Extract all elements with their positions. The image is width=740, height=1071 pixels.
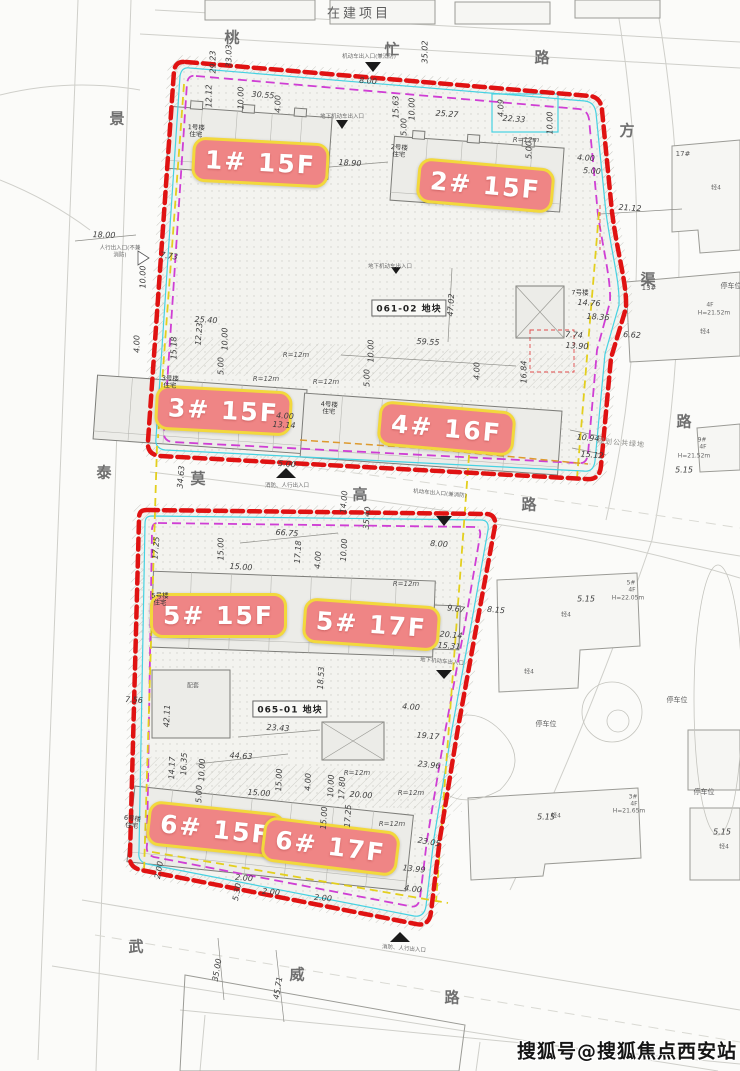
dimension-label: 12.12 — [205, 85, 214, 108]
street-char: 路 — [521, 494, 536, 515]
entrance-label: 地下机动车出入口 — [320, 112, 364, 120]
context-building-label: 3# — [629, 794, 638, 801]
radius-label: R=12m — [253, 375, 279, 383]
dimension-label: 35.02 — [421, 41, 430, 64]
dimension-label: 18.00 — [92, 230, 115, 240]
entrance-label: 消防、人行出入口 — [265, 481, 309, 489]
dimension-label: 16.84 — [520, 361, 529, 384]
dimension-label: 18.53 — [316, 666, 326, 689]
unit-name: 7号楼 — [571, 289, 588, 296]
radius-label: R=12m — [313, 378, 339, 386]
dimension-label: 19.17 — [416, 731, 440, 742]
dimension-label: 25.27 — [435, 109, 458, 120]
dimension-label: 5.00 — [194, 785, 204, 803]
pavement-label: 轻4 — [524, 667, 534, 676]
street-char: 高 — [352, 484, 367, 505]
dimension-label: 18.36 — [586, 312, 609, 322]
parking-label: 停车位 — [694, 787, 715, 797]
pavement-label: 轻4 — [711, 183, 721, 192]
unit-type: 住宅 — [322, 409, 335, 417]
dimension-label: 4.00 — [274, 95, 283, 113]
context-building-label: 13# — [642, 284, 657, 292]
dimension-label: 22.33 — [502, 114, 525, 125]
dimension-label: 8.15 — [487, 605, 506, 616]
dimension-label: 10.00 — [339, 538, 349, 561]
unit-type: 住宅 — [189, 132, 202, 140]
dimension-label: 42.11 — [162, 704, 172, 727]
unit-label: 3号楼住宅 — [161, 375, 179, 391]
dimension-label: 20.00 — [349, 790, 372, 801]
dimension-label: 6.62 — [623, 330, 641, 340]
site-plan-drawing — [0, 0, 740, 1071]
entrance-label: 机动车出入口(兼消防) — [342, 52, 396, 60]
dimension-label: 4.00 — [313, 551, 323, 569]
entrance-arrow-icon — [390, 932, 410, 942]
dimension-label: 7.56 — [125, 695, 143, 705]
amenity-label: 配套 — [187, 681, 199, 690]
dimension-label: 15.00 — [274, 768, 284, 791]
dimension-label: 5.15 — [713, 828, 731, 837]
dimension-label: 5.00 — [278, 459, 297, 470]
radius-label: R=12m — [344, 769, 370, 777]
entrance-label: 地下机动车出入口 — [368, 262, 412, 270]
radius-label: R=12m — [379, 820, 405, 828]
unit-label: 7号楼 — [571, 289, 588, 296]
context-building-label: H=21.65m — [613, 808, 646, 815]
radius-label: R=12m — [398, 789, 424, 797]
dimension-label: 10.00 — [546, 112, 555, 135]
dimension-label: 14.76 — [577, 298, 600, 308]
street-char: 威 — [289, 964, 304, 985]
dimension-label: 5.00 — [400, 118, 409, 136]
dimension-label: 15.00 — [319, 806, 329, 829]
radius-label: R=12m — [513, 136, 539, 144]
unit-label: 2号楼住宅 — [390, 144, 408, 160]
dimension-label: 2.00 — [262, 887, 281, 898]
parking-label: 停车位 — [536, 719, 557, 729]
dimension-label: 15.12 — [580, 450, 604, 461]
unit-label: 5号楼住宅 — [151, 593, 168, 608]
street-char: 景 — [109, 108, 124, 129]
construction-project-label: 在建项目 — [327, 3, 391, 22]
dimension-label: 21.12 — [618, 203, 641, 213]
unit-label: 6号楼住宅 — [123, 815, 142, 832]
dimension-label: 17.80 — [337, 776, 347, 799]
dimension-label: 4.00 — [303, 773, 313, 791]
dimension-label: 10.00 — [326, 774, 336, 797]
dimension-label: 15.63 — [392, 96, 401, 119]
parcel-label: 061-02 地块 — [371, 300, 446, 317]
dimension-label: 4.00 — [473, 362, 482, 380]
parking-label: 停车位 — [721, 281, 740, 291]
dimension-label: 4.00 — [133, 335, 142, 353]
dimension-label: 5.15 — [675, 466, 693, 475]
dimension-label: 5.00 — [217, 357, 226, 375]
context-building-label: 4F — [706, 302, 713, 309]
dimension-label: 5.15 — [577, 595, 595, 604]
context-building-label: H=21.52m — [698, 310, 731, 317]
dimension-label: 10.00 — [408, 98, 417, 121]
dimension-label: 14.17 — [167, 756, 177, 779]
context-building-label: 4F — [699, 444, 706, 451]
dimension-label: 17.25 — [343, 804, 353, 827]
dimension-label: 47.02 — [446, 293, 456, 316]
dimension-label: 4.00 — [404, 884, 423, 895]
dimension-label: 30.55 — [251, 90, 274, 101]
radius-label: R=12m — [283, 351, 309, 359]
dimension-label: 10.00 — [197, 758, 207, 781]
street-char: 泰 — [96, 462, 111, 483]
dimension-label: 15.00 — [217, 538, 226, 561]
unit-type: 住宅 — [163, 383, 176, 391]
dimension-label: 10.00 — [237, 87, 246, 110]
dimension-label: 44.63 — [229, 751, 252, 761]
dimension-label: 5.00 — [583, 166, 601, 176]
pavement-label: 轻4 — [719, 842, 729, 851]
dimension-label: 2.00 — [235, 873, 254, 884]
dimension-label: 15.00 — [229, 562, 252, 573]
dimension-label: 18.90 — [338, 158, 361, 168]
dimension-label: 10.00 — [367, 340, 376, 363]
pavement-label: 轻4 — [700, 327, 710, 336]
parking-label: 停车位 — [667, 695, 688, 705]
unit-type: 住宅 — [125, 822, 139, 831]
dimension-label: 15.31 — [437, 641, 461, 652]
tower-tag: 5# 17F — [302, 597, 442, 651]
dimension-label: 20.14 — [439, 630, 463, 641]
context-building-label: H=22.05m — [612, 595, 645, 602]
dimension-label: 4.00 — [402, 702, 420, 712]
pavement-label: 轻4 — [561, 610, 571, 619]
entrance-arrow-icon — [365, 62, 381, 72]
dimension-label: 4.00 — [577, 153, 595, 163]
unit-type: 住宅 — [153, 600, 166, 607]
dimension-label: 15.18 — [170, 337, 179, 360]
context-building-label: 4F — [628, 587, 635, 594]
dimension-label: 15.00 — [247, 788, 270, 799]
dimension-label: 5.00 — [363, 369, 372, 387]
unit-type: 住宅 — [392, 152, 405, 160]
site-plan-canvas: 在建项目 桃 忙 路 景 方 渠 泰 莫 高 路 路 武 威 路 061-02 … — [0, 0, 740, 1071]
context-building-label: 4F — [630, 801, 637, 808]
dimension-label: 8.00 — [359, 76, 377, 86]
small-building-footprint — [322, 722, 384, 760]
dimension-label: 17.18 — [293, 540, 303, 563]
dimension-label: 10.00 — [139, 266, 148, 289]
street-char: 莫 — [190, 468, 205, 489]
entrance-label: 人行出入口(不兼消防) — [97, 245, 143, 258]
context-building-label: 5# — [627, 580, 636, 587]
tower-tag: 1# 15F — [191, 136, 330, 188]
context-building-label: 9# — [698, 437, 707, 444]
unit-label: 4号楼住宅 — [320, 401, 338, 417]
dimension-label: 7.74 — [565, 330, 583, 340]
tower-tag: 5# 15F — [150, 593, 287, 638]
dimension-label: 16.35 — [179, 752, 189, 775]
dimension-label: 10.94 — [576, 433, 600, 444]
dimension-label: 2.00 — [314, 893, 333, 904]
street-char: 方 — [619, 120, 634, 141]
dimension-label: 13.90 — [565, 341, 588, 351]
street-char: 路 — [534, 47, 549, 68]
parcel-label: 065-01 地块 — [252, 701, 327, 718]
dimension-label: 8.00 — [430, 539, 448, 549]
watermark: 搜狐号@搜狐焦点西安站 — [517, 1037, 737, 1064]
dimension-label: 59.55 — [416, 337, 439, 347]
dimension-label: 23.43 — [266, 723, 289, 733]
context-building-label: 17# — [676, 150, 691, 158]
dimension-label: 29.23 — [209, 51, 218, 74]
dimension-label: 33.03 — [225, 45, 234, 68]
street-char: 路 — [676, 411, 691, 432]
dimension-label: 10.00 — [221, 328, 230, 351]
context-building-label: H=21.52m — [678, 453, 711, 460]
street-char: 武 — [128, 936, 143, 957]
dimension-label: 66.75 — [275, 528, 298, 539]
street-char: 路 — [444, 987, 459, 1008]
radius-label: R=12m — [393, 580, 419, 588]
dimension-label: 5.15 — [537, 813, 555, 822]
dimension-label: 13.14 — [272, 420, 295, 430]
unit-label: 1号楼住宅 — [187, 124, 205, 140]
